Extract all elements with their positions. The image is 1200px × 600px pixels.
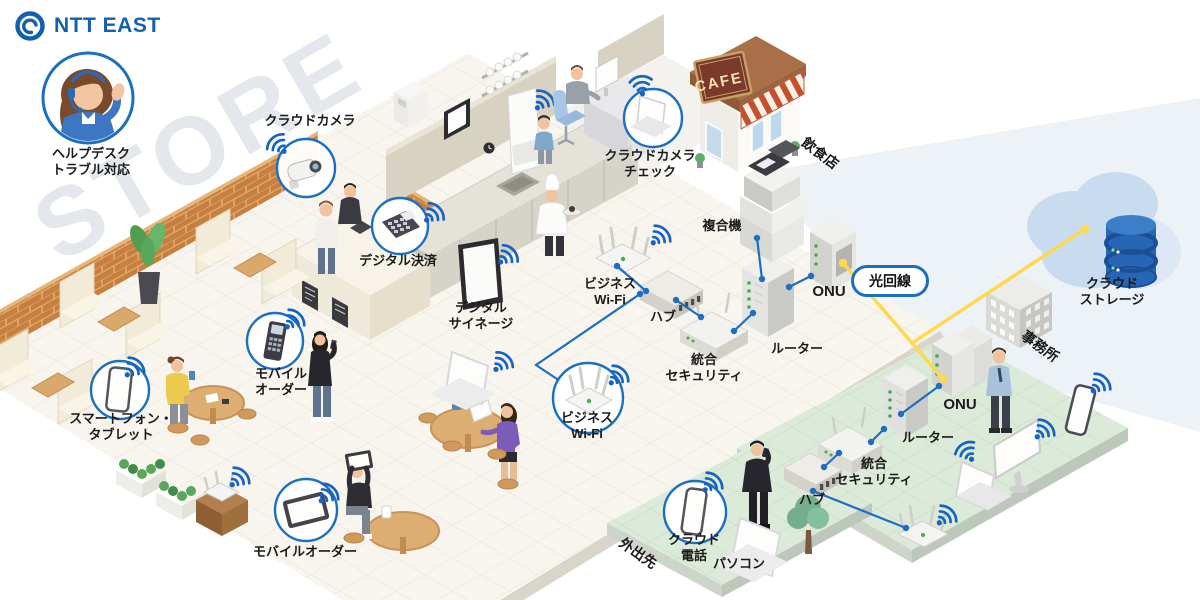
label-mobile-order-2: モバイルオーダー (253, 544, 357, 560)
label-digital-payment: デジタル決済 (359, 253, 437, 269)
onu-store (810, 219, 856, 291)
label-digital-signage: デジタル サイネージ (449, 300, 514, 331)
label-line: モバイル (255, 366, 307, 382)
ntt-east-store-network-illustration: STORE (0, 0, 1200, 600)
label-line: クラウド (1080, 276, 1145, 292)
router-tower-store (742, 253, 794, 337)
label-onu-store: ONU (812, 283, 845, 301)
label-line: オーダー (255, 382, 307, 398)
label-pc: パソコン (713, 556, 765, 572)
label-line: タブレット (69, 427, 173, 443)
label-line: ストレージ (1080, 292, 1145, 308)
label-line: Wi-Fi (561, 426, 613, 442)
label-security-store: 統合 セキュリティ (665, 352, 742, 383)
label-cloud-camera: クラウドカメラ (264, 113, 355, 129)
label-line: ビジネス (584, 276, 636, 292)
wall-clock (484, 143, 495, 154)
fiber-line-badge: 光回線 (851, 265, 929, 297)
label-router-store: ルーター (771, 341, 823, 357)
label-line: トラブル対応 (52, 162, 130, 178)
label-line: 統合 (835, 456, 912, 472)
label-line: Wi-Fi (584, 292, 636, 308)
label-router-office: ルーター (902, 430, 954, 446)
label-business-wifi-1: ビジネス Wi-Fi (584, 276, 636, 307)
ntt-logo-icon (12, 8, 48, 44)
label-security-office: 統合 セキュリティ (835, 456, 912, 487)
label-line: セキュリティ (835, 472, 912, 488)
label-cloud-storage: クラウド ストレージ (1080, 276, 1145, 307)
brand-logo: NTT EAST (12, 8, 161, 44)
label-line: ビジネス (561, 410, 613, 426)
label-helpdesk: ヘルプデスク トラブル対応 (52, 146, 130, 177)
brand-name: NTT EAST (54, 14, 161, 38)
label-business-wifi-2: ビジネス Wi-Fi (561, 410, 613, 441)
label-smartphone-tablet: スマートフォン・ タブレット (69, 411, 173, 442)
label-hub-store: ハブ (650, 309, 676, 325)
label-line: セキュリティ (665, 368, 742, 384)
label-mfp: 複合機 (702, 218, 741, 234)
helpdesk-avatar (43, 53, 133, 144)
label-line: デジタル (449, 300, 514, 316)
label-line: クラウドカメラ (604, 148, 695, 164)
label-mobile-order-1: モバイル オーダー (255, 366, 307, 397)
label-line: チェック (604, 164, 695, 180)
label-line: サイネージ (449, 316, 514, 332)
label-line: クラウド (668, 532, 720, 548)
label-hub-office: ハブ (799, 492, 825, 508)
label-line: ヘルプデスク (52, 146, 130, 162)
label-line: スマートフォン・ (69, 411, 173, 427)
router-tower-office (884, 365, 928, 437)
label-camera-check: クラウドカメラ チェック (604, 148, 695, 179)
label-onu-office: ONU (943, 396, 976, 414)
label-line: 統合 (665, 352, 742, 368)
